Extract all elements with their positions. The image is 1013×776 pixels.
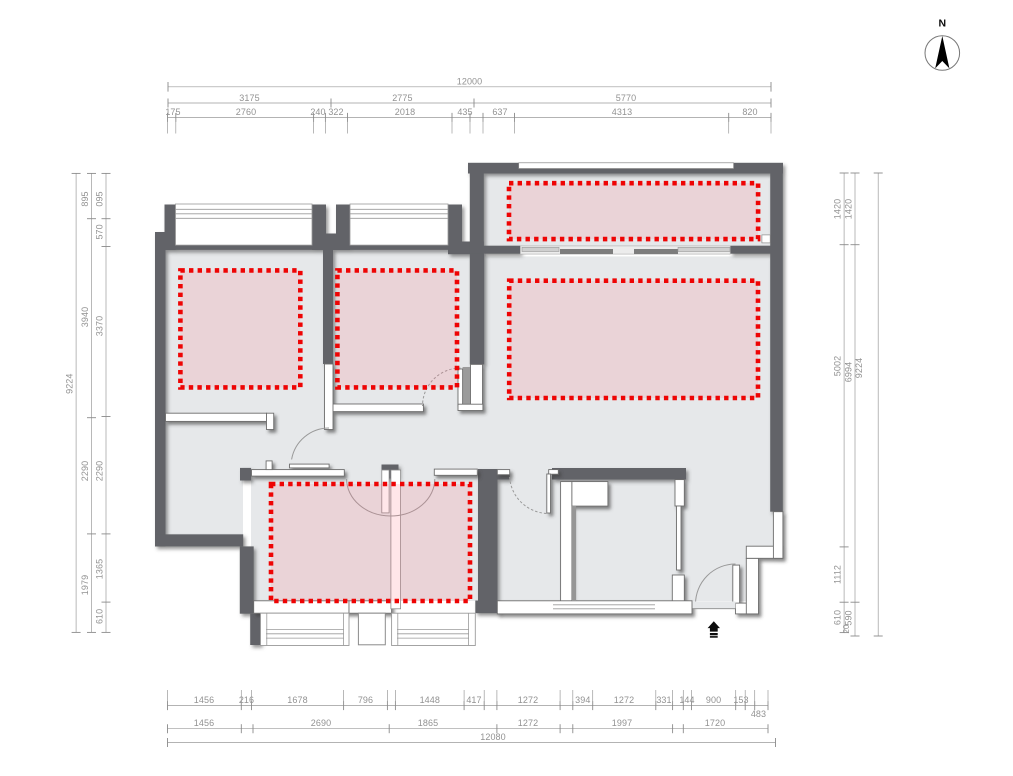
- svg-text:2760: 2760: [236, 107, 256, 117]
- svg-text:240: 240: [310, 107, 325, 117]
- svg-text:N: N: [939, 18, 947, 30]
- svg-text:9224: 9224: [65, 373, 75, 393]
- svg-text:900: 900: [706, 695, 721, 705]
- svg-text:796: 796: [358, 695, 373, 705]
- svg-text:417: 417: [466, 695, 481, 705]
- svg-text:2018: 2018: [395, 107, 415, 117]
- svg-text:435: 435: [457, 107, 472, 117]
- svg-text:1420: 1420: [844, 199, 854, 219]
- svg-text:175: 175: [165, 107, 180, 117]
- svg-text:12000: 12000: [457, 77, 483, 87]
- svg-text:1720: 1720: [705, 718, 725, 728]
- svg-text:1678: 1678: [287, 695, 307, 705]
- svg-text:2690: 2690: [311, 718, 331, 728]
- svg-text:331: 331: [656, 695, 671, 705]
- svg-text:1420: 1420: [833, 199, 843, 219]
- svg-text:895: 895: [80, 191, 90, 206]
- svg-text:095: 095: [95, 191, 105, 206]
- svg-text:483: 483: [751, 709, 766, 719]
- svg-text:12080: 12080: [480, 732, 506, 742]
- svg-text:4313: 4313: [612, 107, 632, 117]
- svg-text:322: 322: [328, 107, 343, 117]
- svg-text:394: 394: [575, 695, 590, 705]
- svg-text:590: 590: [844, 610, 854, 625]
- svg-text:1272: 1272: [614, 695, 634, 705]
- svg-text:1865: 1865: [418, 718, 438, 728]
- svg-text:3175: 3175: [239, 93, 259, 103]
- svg-text:3940: 3940: [80, 307, 90, 327]
- svg-text:820: 820: [742, 107, 757, 117]
- svg-text:9224: 9224: [854, 358, 864, 378]
- svg-text:1365: 1365: [95, 559, 105, 579]
- svg-text:610: 610: [833, 610, 843, 625]
- svg-text:2775: 2775: [392, 93, 412, 103]
- svg-text:570: 570: [95, 224, 105, 239]
- svg-text:1997: 1997: [612, 718, 632, 728]
- svg-text:6994: 6994: [844, 362, 854, 382]
- svg-text:2290: 2290: [95, 461, 105, 481]
- svg-text:2290: 2290: [80, 461, 90, 481]
- svg-text:5002: 5002: [833, 356, 843, 376]
- svg-text:1272: 1272: [518, 718, 538, 728]
- svg-text:637: 637: [492, 107, 507, 117]
- svg-text:1448: 1448: [420, 695, 440, 705]
- svg-text:1979: 1979: [80, 575, 90, 595]
- svg-text:144: 144: [679, 695, 694, 705]
- svg-text:20: 20: [842, 624, 851, 634]
- svg-text:1456: 1456: [194, 718, 214, 728]
- svg-text:610: 610: [95, 609, 105, 624]
- svg-text:1456: 1456: [194, 695, 214, 705]
- svg-text:1272: 1272: [518, 695, 538, 705]
- svg-text:3370: 3370: [95, 316, 105, 336]
- svg-text:5770: 5770: [616, 93, 636, 103]
- svg-text:1112: 1112: [833, 565, 843, 584]
